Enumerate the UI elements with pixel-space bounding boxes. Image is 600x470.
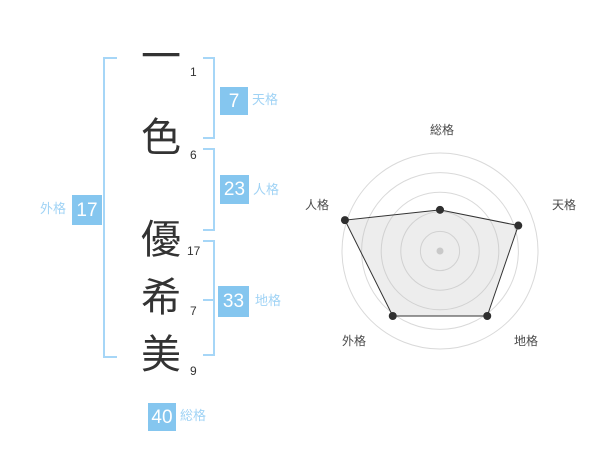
- radar-value-polygon: [345, 210, 518, 316]
- name-analysis-screen: 一 色 優 希 美 1 6 17 7 9 7 天格 23 人格 33 地格 外格…: [0, 0, 600, 470]
- stroke-count: 6: [190, 149, 197, 161]
- radar-axis-label: 外格: [342, 333, 366, 348]
- chikaku-value-badge: 33: [218, 286, 249, 317]
- radar-data-point: [436, 206, 444, 214]
- stroke-count: 17: [187, 245, 200, 257]
- chikaku-bracket: [203, 240, 215, 356]
- name-character: 優: [139, 220, 183, 260]
- name-character: 希: [139, 278, 183, 318]
- gaikaku-bracket: [103, 57, 117, 358]
- gaikaku-label: 外格: [40, 202, 66, 216]
- radar-data-point: [341, 216, 349, 224]
- gaikaku-value-badge: 17: [72, 195, 102, 225]
- fortune-radar-chart: 総格天格地格外格人格: [300, 110, 600, 360]
- jinkaku-value-badge: 23: [220, 175, 249, 204]
- soukaku-value-badge: 40: [148, 403, 176, 431]
- radar-data-point: [389, 312, 397, 320]
- soukaku-label: 総格: [180, 409, 206, 423]
- radar-data-point: [514, 222, 522, 230]
- radar-axis-label: 地格: [514, 333, 538, 348]
- stroke-count: 9: [190, 365, 197, 377]
- tenkaku-label: 天格: [252, 93, 278, 107]
- name-character: 一: [139, 37, 183, 77]
- radar-axis-label: 天格: [552, 197, 576, 212]
- chikaku-label: 地格: [255, 294, 281, 308]
- radar-axis-label: 総格: [430, 122, 454, 137]
- stroke-count: 7: [190, 305, 197, 317]
- jinkaku-label: 人格: [253, 183, 279, 197]
- stroke-count: 1: [190, 66, 197, 78]
- name-character: 色: [139, 118, 183, 158]
- name-character: 美: [139, 335, 183, 375]
- radar-center-dot: [437, 248, 444, 255]
- tenkaku-bracket: [203, 57, 215, 139]
- radar-axis-label: 人格: [305, 197, 329, 212]
- jinkaku-bracket: [203, 148, 215, 231]
- tenkaku-value-badge: 7: [220, 87, 248, 115]
- chikaku-bracket-mid-tick: [203, 299, 214, 301]
- radar-data-point: [483, 312, 491, 320]
